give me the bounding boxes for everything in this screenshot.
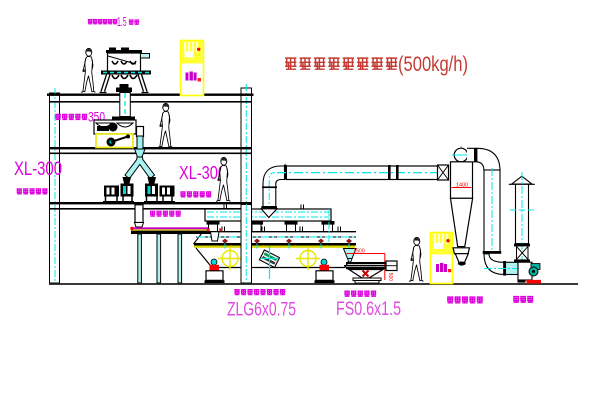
- svg-text:1500: 1500: [354, 249, 365, 255]
- svg-text:(500kg/h): (500kg/h): [398, 53, 468, 76]
- svg-text:1400: 1400: [456, 183, 468, 189]
- svg-text:1.5: 1.5: [117, 14, 127, 29]
- svg-text:FS0.6x1.5: FS0.6x1.5: [336, 299, 401, 320]
- svg-text:ZLG6x0.75: ZLG6x0.75: [227, 300, 296, 321]
- svg-text:XL-300: XL-300: [14, 159, 62, 180]
- svg-text:500: 500: [387, 273, 393, 282]
